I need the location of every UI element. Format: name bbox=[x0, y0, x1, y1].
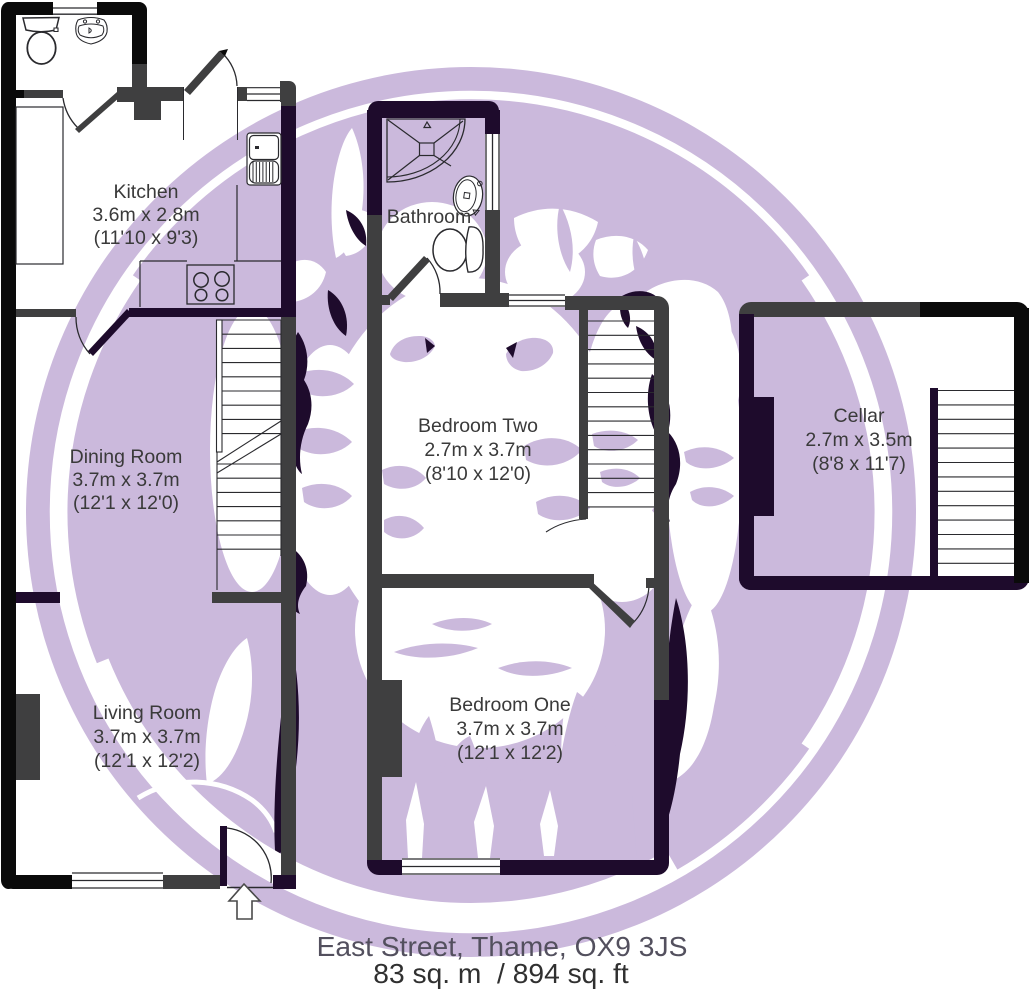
svg-text:3.6m x 2.8m: 3.6m x 2.8m bbox=[92, 204, 199, 226]
svg-text:Bedroom One: Bedroom One bbox=[449, 694, 570, 716]
svg-text:3.7m x 3.7m: 3.7m x 3.7m bbox=[456, 718, 563, 740]
svg-text:(8'8 x 11'7): (8'8 x 11'7) bbox=[812, 453, 906, 475]
svg-text:(12'1 x 12'2): (12'1 x 12'2) bbox=[94, 750, 200, 772]
svg-text:83 sq. m / 894 sq. ft: 83 sq. m / 894 sq. ft bbox=[373, 957, 629, 989]
svg-text:3.7m x 3.7m: 3.7m x 3.7m bbox=[72, 469, 179, 491]
svg-text:(11'10 x 9'3): (11'10 x 9'3) bbox=[94, 227, 199, 249]
svg-text:2.7m x 3.5m: 2.7m x 3.5m bbox=[805, 429, 912, 451]
svg-text:(12'1 x 12'2): (12'1 x 12'2) bbox=[457, 742, 563, 764]
svg-text:(12'1 x 12'0): (12'1 x 12'0) bbox=[73, 492, 179, 514]
svg-text:Bedroom Two: Bedroom Two bbox=[418, 415, 538, 437]
svg-text:3.7m x 3.7m: 3.7m x 3.7m bbox=[93, 726, 200, 748]
svg-text:Dining Room: Dining Room bbox=[70, 446, 183, 468]
svg-text:(8'10 x 12'0): (8'10 x 12'0) bbox=[425, 463, 531, 485]
svg-text:Kitchen: Kitchen bbox=[113, 181, 178, 203]
svg-text:Living Room: Living Room bbox=[93, 702, 201, 724]
svg-text:2.7m x 3.7m: 2.7m x 3.7m bbox=[424, 439, 531, 461]
svg-text:Bathroom: Bathroom bbox=[387, 206, 472, 228]
svg-text:Cellar: Cellar bbox=[834, 405, 885, 427]
